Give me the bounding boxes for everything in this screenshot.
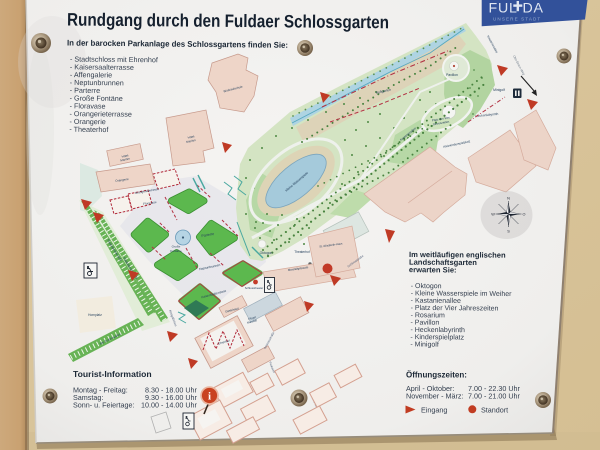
- svg-text:i: i: [208, 391, 211, 403]
- svg-text:Minigolf: Minigolf: [493, 88, 505, 92]
- svg-text:- Oktogon: - Oktogon: [411, 283, 442, 290]
- svg-text:Sonn- u. Feiertage:: Sonn- u. Feiertage:: [73, 401, 135, 410]
- svg-text:10.00 - 14.00 Uhr: 10.00 - 14.00 Uhr: [141, 401, 198, 410]
- svg-text:- Minigolf: - Minigolf: [410, 341, 438, 348]
- svg-text:Rundgang durch den Fuldaer Sch: Rundgang durch den Fuldaer Schlossgarten: [67, 10, 389, 33]
- svg-text:Große: Große: [172, 245, 181, 249]
- svg-text:November - März:: November - März:: [406, 392, 464, 401]
- svg-text:Pavillon: Pavillon: [446, 73, 458, 77]
- svg-text:Fontäne: Fontäne: [170, 249, 182, 253]
- svg-text:Hornplatz: Hornplatz: [88, 313, 102, 317]
- svg-text:O: O: [523, 213, 526, 217]
- svg-text:W: W: [491, 213, 495, 217]
- svg-text:Schlosstheater: Schlosstheater: [245, 286, 264, 290]
- svg-text:Tourist-Information: Tourist-Information: [73, 369, 152, 379]
- svg-text:Eingang: Eingang: [421, 406, 447, 415]
- svg-text:Öffnungszeiten:: Öffnungszeiten:: [406, 371, 467, 380]
- svg-text:N: N: [507, 197, 510, 201]
- svg-text:- Kastanienallee: - Kastanienallee: [411, 298, 461, 305]
- svg-text:Theaterhof: Theaterhof: [294, 250, 310, 254]
- svg-text:Standort: Standort: [481, 406, 508, 415]
- svg-text:- Theaterhof: - Theaterhof: [69, 125, 108, 134]
- svg-text:erwarten Sie:: erwarten Sie:: [409, 265, 457, 274]
- svg-text:S: S: [507, 230, 510, 234]
- svg-text:DA: DA: [523, 1, 544, 17]
- svg-text:Oktogon: Oktogon: [260, 251, 273, 255]
- svg-text:- Heckenlabyrinth: - Heckenlabyrinth: [410, 327, 465, 334]
- svg-text:- Kinderspielplatz: - Kinderspielplatz: [410, 334, 464, 341]
- svg-text:FUL: FUL: [489, 1, 518, 17]
- svg-text:7.00 - 21.00 Uhr: 7.00 - 21.00 Uhr: [468, 392, 521, 401]
- svg-text:- Pavillon: - Pavillon: [411, 320, 440, 327]
- svg-text:- Rosarium: - Rosarium: [411, 312, 445, 319]
- svg-text:UNSERE STADT: UNSERE STADT: [493, 17, 541, 22]
